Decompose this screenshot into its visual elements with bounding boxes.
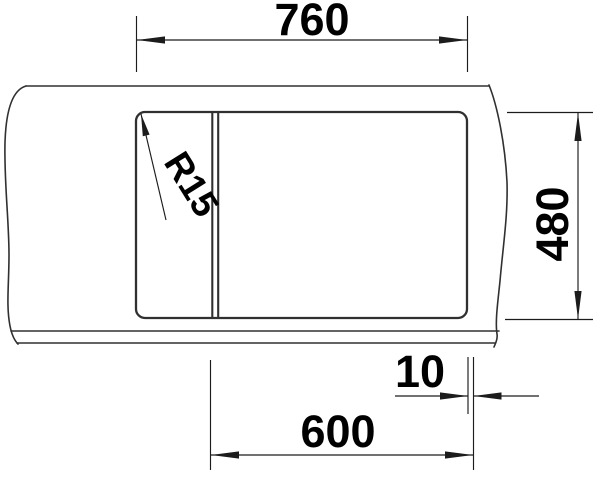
sink-dimension-drawing: 760 480 10 <box>0 0 600 477</box>
dim-10-label: 10 <box>395 346 445 397</box>
dim-600-label: 600 <box>300 406 375 457</box>
bowl-outline <box>136 112 467 318</box>
arrowhead-left-icon <box>137 36 165 43</box>
technical-drawing-canvas: 760 480 10 <box>0 0 600 477</box>
radius-label: R15 <box>156 145 227 224</box>
arrowhead-right-icon <box>439 36 467 43</box>
radius-arrowhead-icon <box>141 114 150 136</box>
arrowhead-up-icon <box>574 113 581 141</box>
arrowhead-right-icon <box>445 451 473 458</box>
break-line-right <box>489 85 507 347</box>
dim-10-arrows <box>440 392 502 399</box>
arrowhead-inward-left-icon <box>474 392 502 399</box>
break-line-left <box>5 86 26 344</box>
arrowhead-left-icon <box>211 451 239 458</box>
bowl <box>136 112 467 318</box>
dim-480-label: 480 <box>527 186 578 261</box>
sink-outer-outline <box>5 85 507 347</box>
radius-callout: R15 <box>141 114 227 224</box>
dim-760-label: 760 <box>274 0 349 45</box>
arrowhead-down-icon <box>574 291 581 319</box>
